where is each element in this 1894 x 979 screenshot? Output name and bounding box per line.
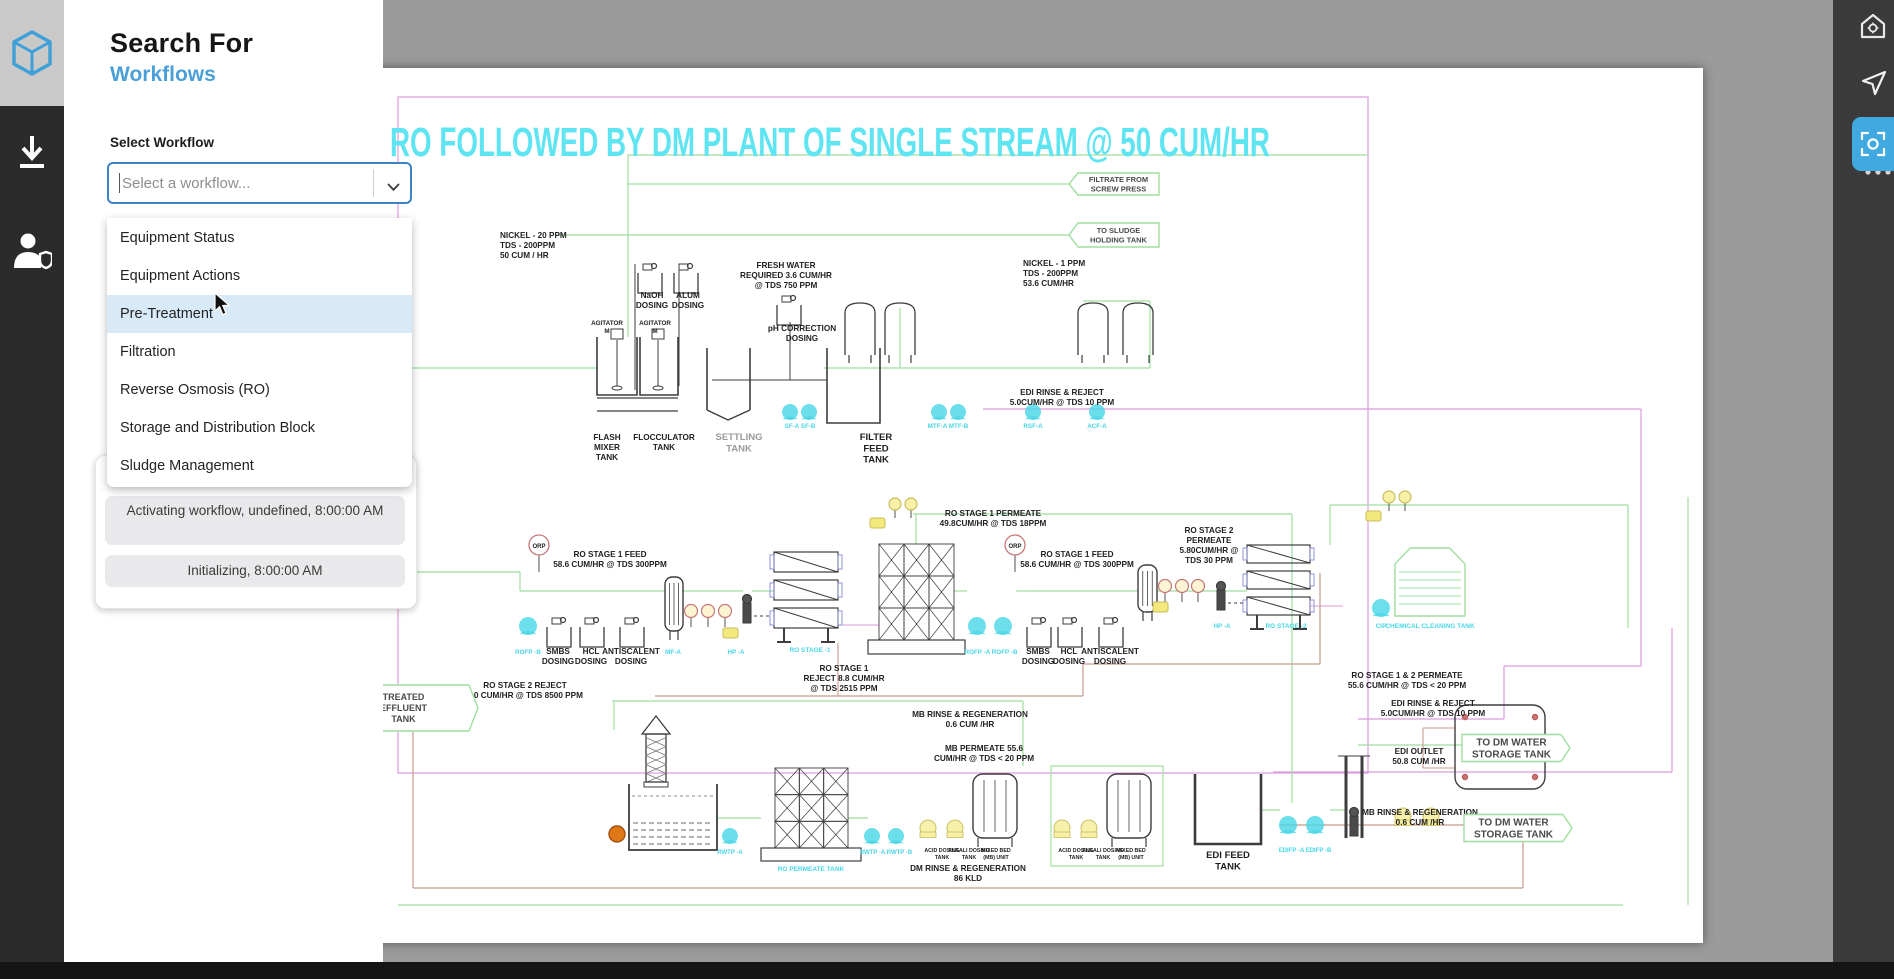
diagram-label: DM RINSE & REGENERATION86 KLD [910,864,1026,883]
diagram-label: NICKEL - 1 PPMTDS - 200PPM53.6 CUM/HR [1023,259,1085,288]
diagram-label: RSF-A [1023,423,1043,430]
diagram-label: HP -A [727,649,744,656]
diagram-label: RO STAGE -2 [1265,623,1306,630]
cursor-icon [1861,70,1887,96]
diagram-flag-label: TO DM WATERSTORAGE TANK [1472,738,1552,761]
diagram-label: EDI RINSE & REJECT5.0CUM/HR @ TDS 10 PPM [1381,699,1486,718]
diagram-label: MIXED BED(MB) UNIT [1116,848,1146,861]
diagram-label: SETTLINGTANK [716,432,763,454]
diagram-label: FRESH WATERREQUIRED 3.6 CUM/HR@ TDS 750 … [740,261,832,290]
diagram-label: FLOCCULATORTANK [633,433,695,452]
user-admin-button[interactable] [0,232,64,270]
diagram-flag-label: FILTRATE FROMSCREW PRESS [1089,175,1148,194]
diagram-label: CHEMICAL CLEANING TANK [1385,623,1475,630]
diagram-label: pH CORRECTIONDOSING [768,324,836,343]
diagram-label: ANTISCALENTDOSING [1081,647,1139,666]
diagram-label: FLASHMIXERTANK [593,433,620,462]
workflow-input-placeholder: Select a workflow... [122,175,250,192]
diagram-label: ORP [1008,544,1021,550]
diagram-label: AGITATORM [639,320,671,335]
diagram-label: MIXED BED(MB) UNIT [981,848,1011,861]
workflow-option-equipment-status[interactable]: Equipment Status [107,219,412,257]
diagram-label: ROFP -B [515,649,541,656]
diagram-flag-label: TO DM WATERSTORAGE TANK [1474,818,1554,841]
diagram-label: ALUMDOSING [672,291,704,310]
download-icon [15,134,49,172]
panel-subtitle: Workflows [110,63,216,87]
diagram-label: ROFP -A ROFP -B [964,649,1018,656]
diagram-label: NaOHDOSING [636,291,668,310]
diagram-label: RO STAGE 1 FEED58.6 CUM/HR @ TDS 300PPM [553,550,667,569]
diagram-label: ANTISCALENTDOSING [602,647,660,666]
diagram-label: MB RINSE & REGENERATION0.6 CUM /HR [1362,808,1478,827]
diagram-label: RWTP -A [717,850,743,856]
bottom-bar [0,962,1894,979]
diagram-flag-label: TO SLUDGEHOLDING TANK [1090,226,1148,245]
workflow-option-pre-treatment[interactable]: Pre-Treatment [107,295,412,333]
diagram-label: RO STAGE 1 PERMEATE49.8CUM/HR @ TDS 18PP… [940,509,1047,528]
app-window: NICKEL - 20 PPMTDS - 200PPM50 CUM / HRNa… [0,0,1894,979]
workflow-option-storage-and-distribution-block[interactable]: Storage and Distribution Block [107,409,412,447]
status-badge: Activating workflow, undefined, 8:00:00 … [105,496,405,545]
diagram-label: HP -A [1213,623,1230,630]
diagram-label: EDIFP -A EDIFP -B [1279,848,1332,854]
diagram-label: ACF-A [1087,423,1107,430]
diagram-label: EDI FEEDTANK [1206,850,1250,872]
diagram-label: SMBSDOSING [542,647,574,666]
input-divider [373,169,374,197]
workflow-option-reverse-osmosis-ro-[interactable]: Reverse Osmosis (RO) [107,371,412,409]
diagram-label: ORP [532,544,545,550]
diagram-label: EDI OUTLET50.8 CUM /HR [1392,747,1445,766]
diagram-title: RO FOLLOWED BY DM PLANT OF SINGLE STREAM… [390,119,1270,165]
diagram-label: RO PERMEATE TANK [778,866,845,873]
workflow-option-sludge-management[interactable]: Sludge Management [107,447,412,485]
diagram-label: EDI RINSE & REJECT5.0CUM/HR @ TDS 10 PPM [1010,388,1115,407]
cube-logo-icon [10,29,54,77]
diagram-label: RWTP -A RWTP -B [860,850,913,856]
diagram-label: FILTERFEEDTANK [860,432,893,466]
mouse-cursor [214,292,231,321]
diagram-label: SF-A SF-B [785,423,816,430]
diagram-label: MB PERMEATE 55.6CUM/HR @ TDS < 20 PPM [934,744,1034,763]
download-button[interactable] [0,134,64,172]
diagram-label: RO STAGE 1 & 2 PERMEATE55.6 CUM/HR @ TDS… [1348,671,1466,690]
diagram-label: SMBSDOSING [1022,647,1054,666]
scan-region-button[interactable] [1852,117,1894,171]
home-settings-button[interactable] [1859,12,1887,44]
panel-title: Search For [110,28,253,59]
scan-region-icon [1860,131,1886,157]
pointer-tool-button[interactable] [1861,70,1887,101]
workflow-option-equipment-actions[interactable]: Equipment Actions [107,257,412,295]
diagram-label: RO STAGE 2 REJECT3.0 CUM/HR @ TDS 8500 P… [467,681,583,700]
diagram-label: NICKEL - 20 PPMTDS - 200PPM50 CUM / HR [500,231,567,260]
user-shield-icon [12,232,52,270]
plant-diagram: NICKEL - 20 PPMTDS - 200PPM50 CUM / HRNa… [383,68,1703,943]
text-caret [119,173,120,193]
diagram-label: RO STAGE -1 [789,647,830,654]
select-workflow-label: Select Workflow [110,135,214,150]
diagram-label: MF-A [665,649,681,656]
diagram-label: RO STAGE 1 FEED58.6 CUM/HR @ TDS 300PPM [1020,550,1134,569]
status-badge: Initializing, 8:00:00 AM [105,555,405,587]
left-sidebar [0,0,64,979]
diagram-label: RO STAGE 2PERMEATE5.80CUM/HR @TDS 30 PPM [1180,526,1239,565]
diagram-label: MB RINSE & REGENERATION0.6 CUM /HR [912,710,1028,729]
home-settings-icon [1859,12,1887,39]
diagram-label: RO STAGE 1REJECT 8.8 CUM/HR@ TDS 2515 PP… [804,664,885,693]
diagram-linework [398,97,1688,905]
app-logo[interactable] [0,0,64,106]
diagram-label: MTF-A MTF-B [928,423,969,430]
workflow-select-input[interactable]: Select a workflow... [107,162,412,204]
workflow-option-filtration[interactable]: Filtration [107,333,412,371]
workflow-dropdown-list: Equipment StatusEquipment ActionsPre-Tre… [107,218,412,487]
chevron-down-icon[interactable] [387,179,400,197]
